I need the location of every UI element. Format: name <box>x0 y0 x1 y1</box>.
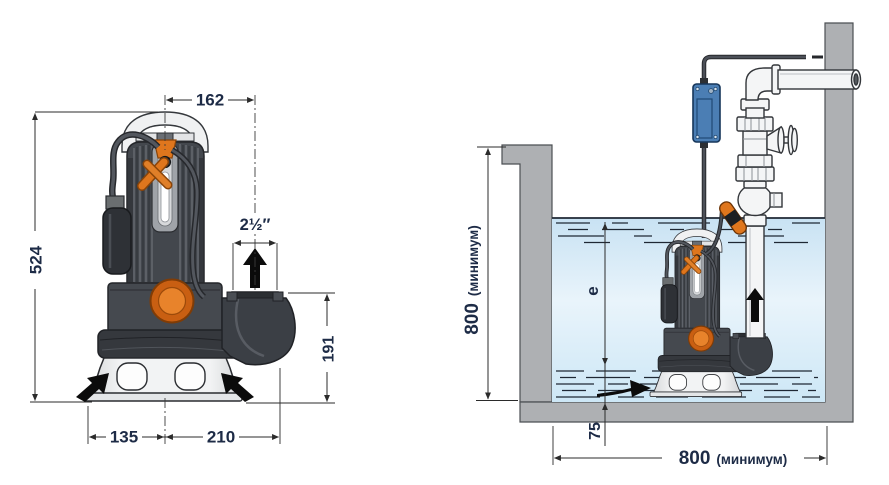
valve-bonnet <box>743 131 767 155</box>
dim-label-width-qualifier: (минимум) <box>716 452 787 467</box>
elbow <box>746 68 774 100</box>
pipe-neck <box>746 108 764 118</box>
dim-label-135: 135 <box>110 428 138 447</box>
dim-label-width-value: 800 <box>679 448 711 469</box>
check-valve-body <box>738 185 772 216</box>
dim-label-depth-qualifier: (минимум) <box>466 225 481 296</box>
dim-label-outlet-size: 2½″ <box>240 216 271 234</box>
valve-handwheel-rim <box>792 129 798 152</box>
dim-label-e: e <box>583 286 602 295</box>
technical-diagram-page: 162 524 2½″ 191 135 210 <box>0 0 889 485</box>
valve-cone-rim <box>778 127 784 153</box>
dimension-outlet-offset: 162 <box>167 91 254 110</box>
check-valve-top-collar <box>744 181 766 188</box>
pit-wall-left <box>502 145 552 402</box>
box-gland-screw <box>709 89 714 94</box>
pipe-bore <box>854 74 858 85</box>
dim-label-162: 162 <box>196 91 224 110</box>
dim-label-75: 75 <box>587 422 604 440</box>
pump-diagram-svg: 162 524 2½″ 191 135 210 <box>0 0 889 485</box>
dim-label-191: 191 <box>321 336 338 363</box>
dim-label-depth-value: 800 <box>462 303 483 335</box>
union-top <box>737 117 773 131</box>
dimension-outlet-height: 191 <box>319 295 338 402</box>
svg-text:800(минимум): 800(минимум) <box>462 225 483 335</box>
dimension-total-height: 524 <box>27 114 46 401</box>
svg-text:800(минимум): 800(минимум) <box>679 448 788 469</box>
check-valve-bottom-collar <box>744 215 766 226</box>
dim-label-524: 524 <box>27 245 46 274</box>
dim-label-210: 210 <box>207 428 235 447</box>
installation-view: 800(минимум) e 75 800(минимум) <box>462 23 861 469</box>
check-valve-plug <box>770 193 782 207</box>
pump-outline-view: 162 524 2½″ 191 135 210 <box>27 91 338 447</box>
horizontal-pipe <box>778 70 856 89</box>
union-large <box>736 167 774 181</box>
dimension-pit-depth: 800(минимум) <box>462 147 518 401</box>
junction-box <box>693 78 720 148</box>
dimension-base-widths: 135 210 <box>90 428 279 447</box>
union-small <box>738 155 772 167</box>
dimension-outlet-size: 2½″ <box>235 215 276 243</box>
